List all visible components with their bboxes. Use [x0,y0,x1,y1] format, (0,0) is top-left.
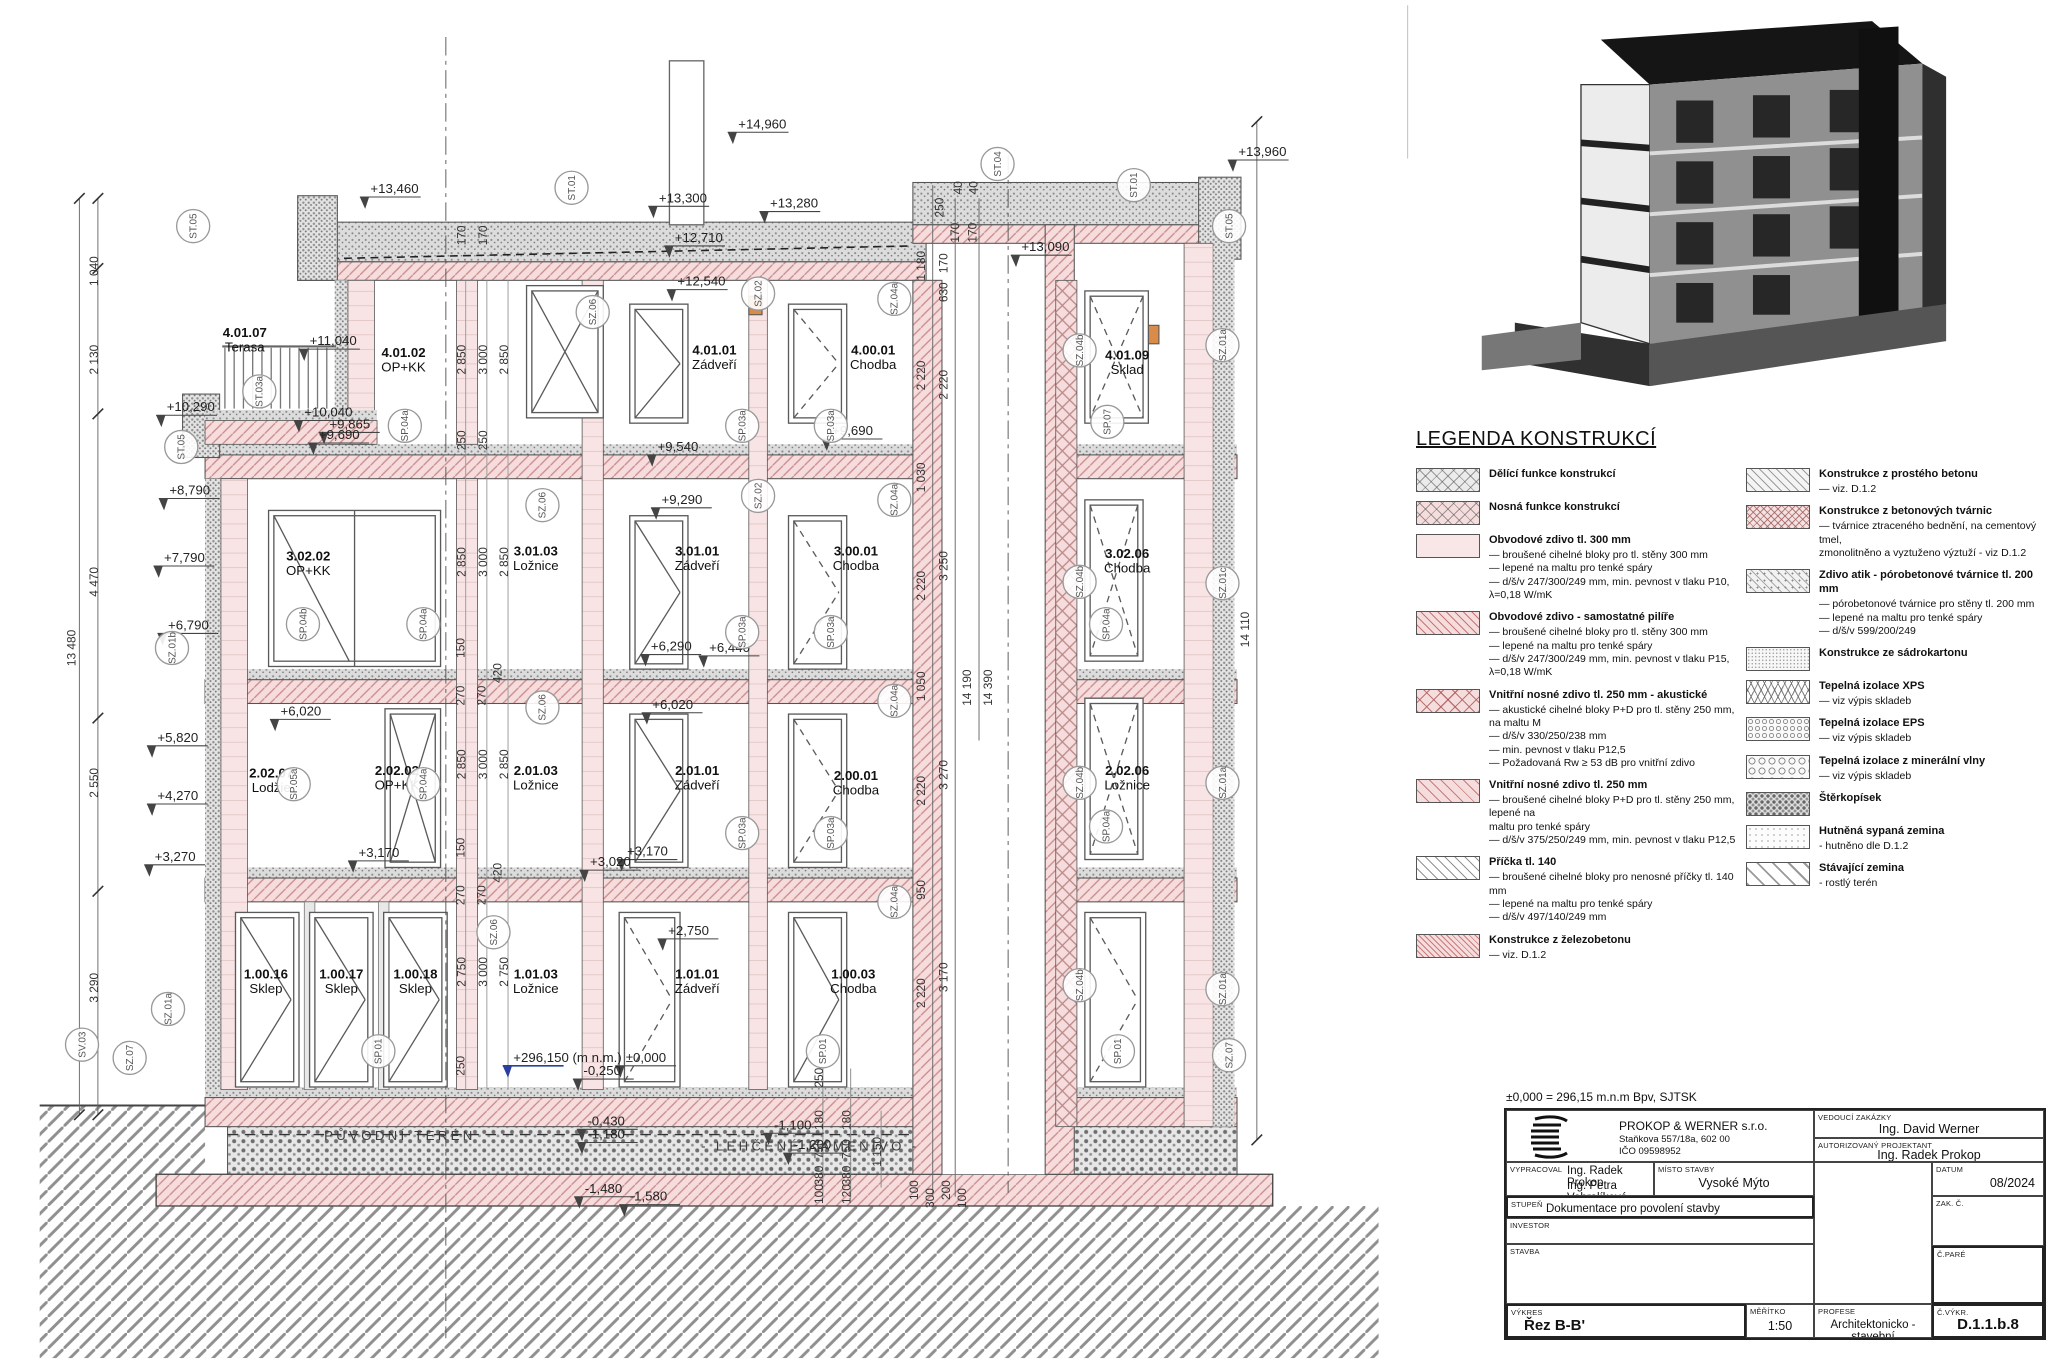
legend-swatch-p-eps [1746,717,1810,741]
legend-item-title: Tepelná izolace XPS [1819,680,1925,694]
marker-label: SZ.04b [1075,334,1086,366]
ground-label: PŮVODNÍ TERÉN [324,1128,475,1143]
profese-value: Architektonicko - stavební [1815,1319,1931,1338]
vedouci-cell: VEDOUCÍ ZAKÁZKY Ing. David Werner [1814,1110,2044,1138]
legend-item: Konstrukce z prostého betonu— viz. D.1.2 [1746,468,2048,496]
legend-item: Štěrkopísek [1746,792,2048,816]
legend-swatch-p-vak [1416,689,1480,713]
legend-item-text: Vnitřní nosné zdivo tl. 250 mm - akustic… [1489,689,1742,771]
room-label: 1.00.16Sklep [244,967,288,997]
legend-item-line: — akustické cihelné bloky P+D pro tl. st… [1489,704,1742,731]
legend-item-title: Konstrukce z prostého betonu [1819,468,1978,482]
profese-cell: PROFESE Architektonicko - stavební [1814,1304,1932,1338]
legend-item-line: — broušené cihelné bloky pro tl. stěny 3… [1489,549,1742,562]
dimension-label: 2 220 [914,360,928,390]
level-label: +6,790 [168,617,209,632]
marker-label: SP.03a [826,410,837,442]
meritko-cell: MĚŘÍTKO 1:50 [1746,1304,1814,1338]
dimension-label: 120 [840,1184,854,1204]
level-label: +10,290 [167,399,215,414]
level-arrow-icon [667,290,676,302]
marker-label: SZ.04a [890,885,901,917]
legend-item-title: Konstrukce z železobetonu [1489,934,1631,948]
dimension-label: 270 [475,885,489,905]
dimension-label: 3 170 [936,962,950,992]
dimension-label: 3 000 [476,749,490,779]
dimension-label: 2 850 [497,547,511,577]
room-label: 1.01.03Ložnice [513,967,559,997]
door-glyph [384,912,448,1087]
dimension-label: 1 050 [914,671,928,701]
level-label: -1,100 [774,1117,811,1132]
investor-cell: INVESTOR [1506,1218,1814,1244]
level-label: +4,270 [157,788,198,803]
legend-item-line: — broušené cihelné bloky pro tl. stěny 3… [1489,626,1742,639]
legend-item-line: - rostlý terén [1819,877,1904,890]
legend-item-text: Zdivo atik - pórobetonové tvárnice tl. 2… [1819,569,2048,638]
legend-item-line: maltu pro tenké spáry [1489,821,1742,834]
legend-item: Zdivo atik - pórobetonové tvárnice tl. 2… [1746,569,2048,638]
dimension-label: 2 220 [914,978,928,1008]
dimension-label: 170 [476,225,490,245]
legend-swatch-p-bt [1746,505,1810,529]
level-label: +13,960 [1238,144,1286,159]
marker-label: ST.04 [993,151,1004,177]
dimension-label: 3 270 [936,760,950,790]
level-arrow-icon [1228,160,1237,172]
marker-label: SP.04a [419,608,430,640]
marker-label: SZ.06 [538,491,549,518]
dimension-label: 3 000 [476,957,490,987]
company-info: PROKOP & WERNER s.r.o. Staňkova 557/18a,… [1619,1119,1767,1158]
level-label: +11,040 [310,333,357,348]
level-arrow-icon [648,206,657,218]
legend-item: Obvodové zdivo - samostatné pilíře— brou… [1416,611,1742,679]
level-label: +296,150 (m n.m.) [513,1050,621,1065]
level-arrow-icon [147,746,156,758]
dimension-label: 3 250 [936,551,950,581]
room-label: 3.02.06Chodba [1104,546,1151,576]
legend-item-line: — d/š/v 599/200/249 [1819,625,2048,638]
legend-item: Tepelná izolace XPS— viz výpis skladeb [1746,680,2048,708]
room-label: 2.01.03Ložnice [513,763,559,793]
legend-item-line: - hutněno dle D.1.2 [1819,840,1944,853]
level-arrow-icon [270,719,279,731]
level-label: +8,790 [169,483,210,498]
vypracoval-label: VYPRACOVAL [1510,1165,1562,1174]
vykres-label: VÝKRES [1511,1308,1543,1317]
marker-label: SZ.01c [1218,567,1229,598]
marker-label: ST.05 [1224,213,1235,239]
level-label: +3,020 [590,854,631,869]
level-arrow-icon [156,415,165,427]
legend-item-title: Konstrukce ze sádrokartonu [1819,647,1968,661]
door-glyph [630,304,688,423]
level-arrow-icon [728,132,737,144]
legend-item-text: Štěrkopísek [1819,792,1881,816]
marker-label: SP.04a [1101,810,1112,842]
profese-label: PROFESE [1818,1307,1855,1316]
dimension-label: 2 550 [87,768,101,798]
legend-item: Stávající zemina- rostlý terén [1746,862,2048,890]
legend-item-text: Dělící funkce konstrukcí [1489,468,1616,492]
level-label: -1,480 [585,1181,622,1196]
dimension-label: 380 [812,1165,826,1185]
middle-empty-cell [1814,1162,1932,1304]
dimension-label: 150 [453,638,467,658]
room-label: 3.00.01Chodba [833,543,880,573]
marker-label: SP.03a [826,817,837,849]
legend-item-line: — d/š/v 247/300/249 mm, min. pevnost v t… [1489,653,1742,680]
vypracoval-value-2: Ing. Petra Vohralíková [1567,1180,1653,1196]
level-label: +7,790 [164,550,205,565]
legend-item-line: — broušené cihelné bloky pro nenosné pří… [1489,871,1742,898]
level-arrow-icon [144,865,153,877]
company-logo [1521,1115,1601,1159]
legend-item: Nosná funkce konstrukcí [1416,501,1742,525]
legend-swatch-p-nos [1416,501,1480,525]
level-label: +9,690 [319,427,360,442]
level-arrow-icon [503,1066,512,1078]
marker-label: ST.01 [1129,172,1140,198]
legend-item-title: Nosná funkce konstrukcí [1489,501,1620,515]
legend-swatch-p-ste [1746,792,1810,816]
marker-label: SP.04a [419,768,430,800]
legend-swatch-p-min [1746,755,1810,779]
legend-item: Konstrukce z železobetonu— viz. D.1.2 [1416,934,1742,962]
drawing-sheet: { "section": { "rooms": [ {"id":"4.01.07… [0,0,2048,1366]
marker-label: SP.05a [289,768,300,800]
dimension-label: 270 [453,685,467,705]
legend-item-text: Vnitřní nosné zdivo tl. 250 mm— broušené… [1489,779,1742,847]
level-label: +13,460 [370,181,418,196]
legend-swatch-p-pri [1416,856,1480,880]
door-glyph [235,912,299,1087]
datum-value: 08/2024 [1933,1176,2035,1190]
company-ico: IČO 09598952 [1619,1146,1767,1158]
legend-swatch-p-xps [1746,680,1810,704]
door-glyph [310,912,374,1087]
dimension-label: 250 [812,1067,826,1087]
legend-item-line: — d/š/v 375/250/249 mm, min. pevnost v t… [1489,834,1742,847]
legend-item-line: — viz. D.1.2 [1489,949,1631,962]
legend-item: Tepelná izolace z minerální vlny— viz vý… [1746,755,2048,783]
marker-label: SP.03a [738,817,749,849]
legend-column-right: Konstrukce z prostého betonu— viz. D.1.2… [1746,468,2048,900]
zakc-label: ZAK. Č. [1936,1199,1964,1208]
legend-swatch-p-zb [1416,934,1480,958]
level-arrow-icon [147,804,156,816]
dimension-label: 14 190 [960,669,974,706]
legend-title: LEGENDA KONSTRUKCÍ [1416,428,2048,451]
legend-item-text: Konstrukce z železobetonu— viz. D.1.2 [1489,934,1631,962]
legend-item-line: — lepené na maltu pro tenké spáry [1819,612,2048,625]
dimension-label: 170 [936,253,950,273]
marker-label: SZ.01a [1218,766,1229,798]
level-label: +6,290 [651,639,692,654]
level-label: ±0,000 [626,1050,666,1065]
dimension-label: 2 220 [914,571,928,601]
stavba-label: STAVBA [1510,1247,1540,1256]
level-label: +6,020 [280,703,321,718]
legend-item-text: Konstrukce z prostého betonu— viz. D.1.2 [1819,468,1978,496]
vykres-cell: VÝKRES Řez B-B' [1506,1304,1746,1338]
marker-label: SZ.04a [890,282,901,314]
dimension-label: 950 [914,880,928,900]
marker-label: SZ.07 [125,1044,136,1071]
zakc-cell: ZAK. Č. [1932,1196,2044,1246]
dimension-label: 2 220 [936,370,950,400]
legend-item-title: Obvodové zdivo tl. 300 mm [1489,534,1742,548]
dimension-label: 170 [948,222,962,242]
cvykr-cell: Č.VÝKR. D.1.1.b.8 [1932,1304,2044,1338]
marker-label: SZ.06 [538,694,549,721]
marker-label: SZ.04a [890,483,901,515]
dimension-label: 40 [951,181,965,195]
company-address: Staňkova 557/18a, 602 00 [1619,1134,1767,1146]
dimension-label: 1 180 [914,251,928,281]
misto-cell: MÍSTO STAVBY Vysoké Mýto [1654,1162,1814,1196]
dimension-label: 2 750 [497,957,511,987]
room-label: 4.01.07Terasa [223,325,267,355]
marker-label: SZ.01a [163,993,174,1025]
legend-item-title: Tepelná izolace EPS [1819,717,1925,731]
room-label: 2.02.06Ložnice [1104,763,1150,793]
company-name: PROKOP & WERNER s.r.o. [1619,1119,1767,1134]
dimension-label: 300 [923,1188,937,1208]
room-label: 4.01.09Sklad [1105,348,1149,378]
cvykr-value: D.1.1.b.8 [1934,1316,2042,1333]
datum-note: ±0,000 = 296,15 m.n.m Bpv, SJTSK [1506,1090,1697,1104]
dimension-label: 420 [490,663,504,683]
marker-label: SZ.02 [753,280,764,307]
dimension-label: 2 850 [455,344,469,374]
legend-item-line: — d/š/v 497/140/249 mm [1489,911,1742,924]
level-label: +14,960 [738,116,786,131]
dimension-label: 150 [453,837,467,857]
legend-item-text: Obvodové zdivo tl. 300 mm— broušené cihe… [1489,534,1742,602]
dimension-label: 250 [476,430,490,450]
legend-item-line: — lepené na maltu pro tenké spáry [1489,640,1742,653]
dimension-label: 2 850 [497,749,511,779]
room-label: 4.01.02OP+KK [381,345,426,375]
dimension-label: 2 220 [914,776,928,806]
level-label: +9,290 [661,492,702,507]
dimension-label: 4 470 [87,567,101,597]
level-label: +9,540 [658,439,699,454]
marker-label: SP.03a [738,410,749,442]
dimension-label: 1 040 [87,256,101,286]
legend-item-text: Konstrukce ze sádrokartonu [1819,647,1968,671]
legend-item-text: Tepelná izolace EPS— viz výpis skladeb [1819,717,1925,745]
legend-item-line: — Požadovaná Rw ≥ 53 dB pro vnitřní zdiv… [1489,757,1742,770]
window-glyph [269,510,441,666]
marker-label: SP.04a [1101,608,1112,640]
legend-item-title: Štěrkopísek [1819,792,1881,806]
marker-label: SP.01 [374,1038,385,1064]
level-label: +13,090 [1021,239,1069,254]
dimension-label: 200 [939,1180,953,1200]
level-label: -0,250 [583,1063,620,1078]
dimension-label: 250 [455,430,469,450]
level-label: +6,020 [652,697,693,712]
legend-item-text: Konstrukce z betonových tvárnic— tvárnic… [1819,505,2048,560]
legend-column-left: Dělící funkce konstrukcíNosná funkce kon… [1416,468,1742,971]
misto-label: MÍSTO STAVBY [1658,1165,1715,1174]
dimension-label: 2 750 [455,957,469,987]
level-arrow-icon [1011,255,1020,267]
legend-item-line: — pórobetonové tvárnice pro stěny tl. 20… [1819,598,2048,611]
dimension-label: 420 [490,862,504,882]
legend-item-line: — lepené na maltu pro tenké spáry [1489,562,1742,575]
level-label: +3,270 [155,849,196,864]
legend-item: Příčka tl. 140— broušené cihelné bloky p… [1416,856,1742,924]
marker-label: SP.04a [400,410,411,442]
marker-label: SZ.04b [1075,565,1086,597]
level-label: +3,170 [359,845,400,860]
level-label: +13,300 [659,190,707,205]
marker-label: SZ.01b [167,632,178,664]
legend-swatch-p-por [1746,569,1810,593]
marker-label: SP.07 [1103,408,1114,434]
marker-label: SZ.06 [489,919,500,946]
level-arrow-icon [153,566,162,578]
legend-swatch-p-sad [1746,647,1810,671]
dimension-label: 2 130 [87,344,101,374]
legend-item-line: — viz výpis skladeb [1819,770,1985,783]
level-label: +12,710 [675,230,723,245]
level-arrow-icon [159,499,168,511]
level-label: +3,170 [627,844,668,859]
legend-swatch-p-v25 [1416,779,1480,803]
legend-item-text: Stávající zemina- rostlý terén [1819,862,1904,890]
legend-swatch-p-pil [1416,611,1480,635]
dimension-label: 14 390 [981,669,995,706]
dimension-label: 180 [812,1110,826,1130]
marker-label: ST.03a [255,376,266,407]
dimension-label: 2 850 [455,749,469,779]
legend-swatch-p-div [1416,468,1480,492]
legend-item-title: Zdivo atik - pórobetonové tvárnice tl. 2… [1819,569,2048,597]
legend-item-line: — d/š/v 330/250/238 mm [1489,730,1742,743]
room-label: 1.00.17Sklep [319,967,363,997]
legend-swatch-p-sta [1746,862,1810,886]
company-cell: PROKOP & WERNER s.r.o. Staňkova 557/18a,… [1506,1110,1814,1162]
marker-label: SZ.07 [1224,1042,1235,1069]
title-block: PROKOP & WERNER s.r.o. Staňkova 557/18a,… [1504,1108,2046,1340]
legend-item-title: Hutněná sypaná zemina [1819,825,1944,839]
room-label: 4.01.01Zádveří [692,342,737,372]
room-label: 1.00.03Chodba [830,967,877,997]
legend-swatch-p-pb [1746,468,1810,492]
dimension-label: 250 [932,197,946,217]
stupen-cell: STUPEŇ Dokumentace pro povolení stavby [1506,1196,1814,1218]
room-label: 4.00.01Chodba [850,342,897,372]
autoriz-value: Ing. Radek Prokop [1815,1148,2043,1162]
marker-label: SP.01 [818,1038,829,1064]
room-label: 3.01.03Ložnice [513,543,559,573]
legend-item: Vnitřní nosné zdivo tl. 250 mm - akustic… [1416,689,1742,771]
legend-item: Tepelná izolace EPS— viz výpis skladeb [1746,717,2048,745]
dimension-label: 13 480 [64,629,78,666]
investor-label: INVESTOR [1510,1221,1550,1230]
dimension-label: 3 000 [476,547,490,577]
room-label: 3.01.01Zádveří [675,543,720,573]
dimension-label: 40 [967,181,981,195]
legend-item-line: zmonolitněno a vyztuženo výztuží - viz D… [1819,547,2048,560]
dimension-label: 1 030 [914,462,928,492]
dimension-label: 270 [453,885,467,905]
dimension-label: 250 [453,1056,467,1076]
marker-label: SP.01 [1113,1038,1124,1064]
legend-item-title: Dělící funkce konstrukcí [1489,468,1616,482]
legend-item-text: Tepelná izolace XPS— viz výpis skladeb [1819,680,1925,708]
legend-item-line: — tvárnice ztraceného bednění, na cement… [1819,520,2048,547]
legend-item-line: — viz. D.1.2 [1819,483,1978,496]
marker-label: SP.03a [826,616,837,648]
legend-item-line: — broušené cihelné bloky P+D pro tl. stě… [1489,794,1742,821]
vedouci-label: VEDOUCÍ ZAKÁZKY [1818,1113,1891,1122]
meritko-label: MĚŘÍTKO [1750,1307,1786,1316]
room-label: 1.01.01Zádveří [675,967,720,997]
legend-item-title: Konstrukce z betonových tvárnic [1819,505,2048,519]
marker-label: SZ.04a [890,684,901,716]
dimension-label: 14 110 [1238,611,1252,647]
dimension-label: 3 000 [476,344,490,374]
level-label: +2,750 [668,923,709,938]
level-arrow-icon [699,656,708,668]
dimension-label: 100 [812,1184,826,1204]
dimension-label: 3 290 [87,973,101,1003]
legend-item: Obvodové zdivo tl. 300 mm— broušené cihe… [1416,534,1742,602]
legend-item-line: — min. pevnost v tlaku P12,5 [1489,744,1742,757]
dimension-label: 100 [907,1180,921,1200]
ground-label: - LEHČENÉ KAMENIVO - [701,1138,919,1153]
legend-item-text: Příčka tl. 140— broušené cihelné bloky p… [1489,856,1742,924]
legend-item-title: Vnitřní nosné zdivo tl. 250 mm - akustic… [1489,689,1742,703]
marker-label: SZ.01a [1218,329,1229,361]
misto-value: Vysoké Mýto [1655,1176,1813,1190]
legend-item-title: Příčka tl. 140 [1489,856,1742,870]
dimension-label: 2 850 [455,547,469,577]
terrace-railing [222,346,336,408]
legend-item-title: Vnitřní nosné zdivo tl. 250 mm [1489,779,1742,793]
marker-label: SP.03a [738,616,749,648]
level-label: +13,280 [770,196,818,211]
vedouci-value: Ing. David Werner [1815,1122,2043,1136]
marker-label: ST.01 [567,175,578,201]
level-label: +12,540 [677,274,725,289]
level-label: -1,180 [587,1127,624,1142]
meritko-value: 1:50 [1747,1319,1813,1333]
legend-item: Vnitřní nosné zdivo tl. 250 mm— broušené… [1416,779,1742,847]
dimension-label: 170 [455,225,469,245]
marker-label: SZ.01a [1218,973,1229,1005]
room-label: 1.00.18Sklep [393,967,437,997]
legend-item: Hutněná sypaná zemina- hutněno dle D.1.2 [1746,825,2048,853]
legend-item-title: Tepelná izolace z minerální vlny [1819,755,1985,769]
legend-item-title: Obvodové zdivo - samostatné pilíře [1489,611,1742,625]
level-arrow-icon [360,197,369,209]
legend-item-line: — lepené na maltu pro tenké spáry [1489,898,1742,911]
dimension-label: 180 [840,1110,854,1130]
room-label: 2.01.01Zádveří [675,763,720,793]
datum-cell: DATUM 08/2024 [1932,1162,2044,1196]
axonometric-3d-view [1482,21,1946,386]
legend: LEGENDA KONSTRUKCÍ Dělící funkce konstru… [1416,428,2048,465]
cpare-cell: Č.PARÉ [1932,1246,2044,1304]
legend-item: Dělící funkce konstrukcí [1416,468,1742,492]
